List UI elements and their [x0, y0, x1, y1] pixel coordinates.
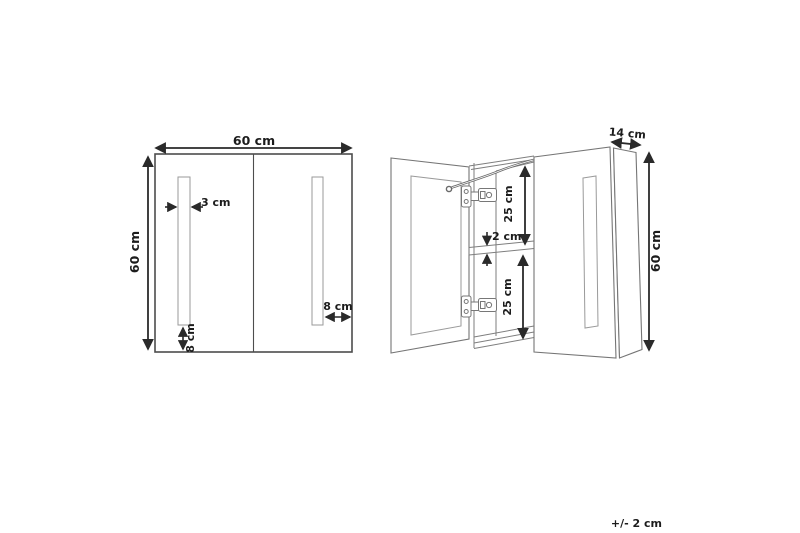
front-width-label: 60 cm	[233, 133, 275, 148]
side-led-strip	[583, 176, 598, 328]
carcass-bottom-mid-edge	[474, 332, 534, 343]
hinge-top-arm	[471, 192, 479, 201]
side-height-label: 60 cm	[648, 230, 663, 272]
front-height-label: 60 cm	[127, 231, 142, 273]
depth-arrow	[612, 142, 640, 145]
cable-connector	[446, 186, 451, 191]
shelf-bottom-edge	[469, 249, 534, 256]
side-view: 14 cm 60 cm 25 cm 2 cm 25 cm	[391, 125, 663, 358]
shelf-thickness-label: 2 cm	[492, 230, 521, 243]
carcass-bottom-front-edge	[474, 338, 534, 349]
strip-width-label: 3 cm	[201, 196, 230, 209]
hinge-bottom	[462, 296, 497, 317]
front-view: 60 cm 60 cm 3 cm 8 cm 8 cm	[127, 133, 353, 353]
front-led-strip-left	[178, 177, 190, 325]
open-door-mirror	[411, 176, 461, 335]
closed-door-front	[534, 147, 616, 358]
tolerance-note: +/- 2 cm	[611, 517, 662, 530]
cabinet-dimension-diagram: 60 cm 60 cm 3 cm 8 cm 8 cm	[0, 0, 800, 533]
top-compartment-label: 25 cm	[502, 185, 515, 222]
hinge-top	[462, 186, 497, 207]
strip-bottom-gap-label: 8 cm	[184, 323, 197, 352]
bottom-compartment-label: 25 cm	[501, 278, 514, 315]
hinge-bottom-mount-plate	[479, 299, 497, 312]
hinge-top-mount-plate	[479, 189, 497, 202]
strip-edge-gap-label: 8 cm	[323, 300, 352, 313]
depth-label: 14 cm	[608, 125, 646, 141]
cabinet-side-panel	[614, 148, 643, 358]
diagram-canvas: 60 cm 60 cm 3 cm 8 cm 8 cm	[0, 0, 800, 533]
carcass-bottom-top-edge	[474, 326, 534, 337]
hinge-bottom-arm	[471, 302, 479, 311]
front-led-strip-right	[312, 177, 323, 325]
